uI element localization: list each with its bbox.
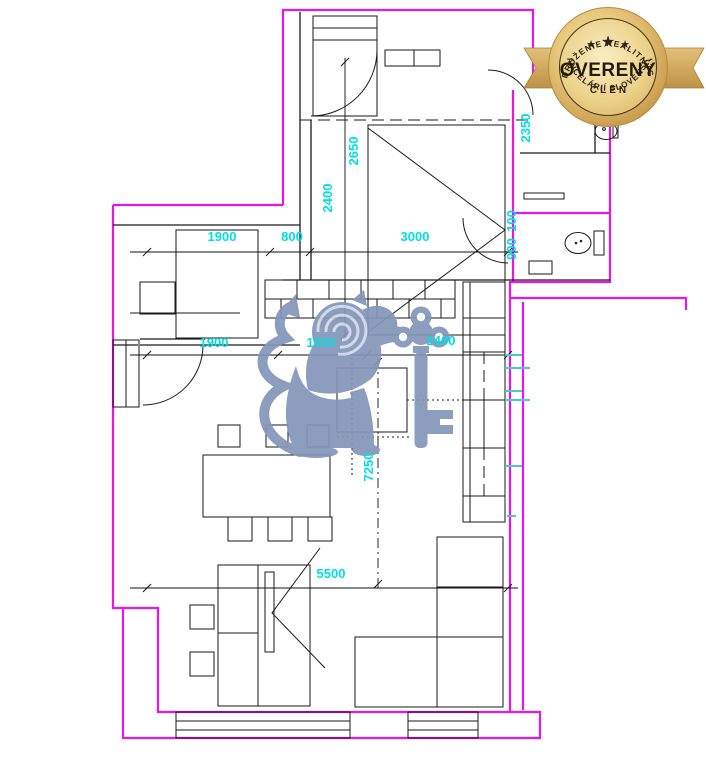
key-bits <box>427 410 453 434</box>
window <box>408 712 478 738</box>
dimension-label: 7250 <box>361 453 376 482</box>
dimension-label: 2650 <box>346 137 361 166</box>
key-icon <box>393 307 454 449</box>
dimension-label: 1900 <box>200 335 229 350</box>
bath-shelf <box>524 193 564 199</box>
sofa-bottom <box>355 637 437 707</box>
nightstand <box>190 652 214 676</box>
toilet <box>565 233 591 254</box>
badge-title: OVERENÝ <box>560 59 656 81</box>
dimension-label: 2400 <box>320 184 335 213</box>
wardrobe-triangle <box>368 125 505 335</box>
window <box>176 712 350 738</box>
badge-subtitle: ČLEN <box>590 83 629 96</box>
lion-key-watermark <box>263 290 454 458</box>
inner-wall-bottom <box>121 608 510 712</box>
chair <box>308 517 332 541</box>
toilet-tank <box>594 231 604 255</box>
door-arc-left-room <box>143 345 203 405</box>
outer-wall-left-bottom <box>113 205 540 738</box>
nightstand-left <box>140 282 175 314</box>
door-arc-entry <box>488 70 533 115</box>
sofa-right <box>437 537 503 707</box>
chair <box>218 425 240 447</box>
chair <box>228 517 252 541</box>
floor-plan-svg: 1900800300026502400235010090019001500240… <box>0 0 706 767</box>
shelf-top <box>385 50 440 66</box>
verified-badge: ZDRUŽENIE REALITNÝCH KANCELÁRIÍ SLOVENSK… <box>524 8 704 127</box>
dimension-label: 100 <box>504 210 519 232</box>
wc-cabinet <box>529 261 552 274</box>
door-arc-bedroom <box>311 50 377 116</box>
star-icon: ★ <box>620 38 630 51</box>
dimension-label: 900 <box>504 238 519 260</box>
dimension-label: 1500 <box>307 335 336 350</box>
dimension-label: 1900 <box>208 229 237 244</box>
floor-plan-page: 1900800300026502400235010090019001500240… <box>0 0 706 767</box>
cyan-wall-ticks <box>505 355 530 516</box>
nightstand <box>190 605 214 629</box>
star-icon: ★ <box>601 32 615 51</box>
dimension-label: 3000 <box>401 229 430 244</box>
dining-table <box>203 455 330 517</box>
key-stem <box>415 352 428 448</box>
dimension-label: 800 <box>281 229 303 244</box>
bed-bottom <box>218 565 310 706</box>
dimension-label: 2350 <box>518 114 533 143</box>
star-icon: ★ <box>586 38 596 51</box>
dimension-label: 2400 <box>427 333 456 348</box>
lion-hind-paw <box>294 446 338 458</box>
lion-ear <box>352 290 367 306</box>
dimension-label: 5500 <box>317 566 346 581</box>
bed-left <box>176 230 258 338</box>
chair <box>268 517 292 541</box>
